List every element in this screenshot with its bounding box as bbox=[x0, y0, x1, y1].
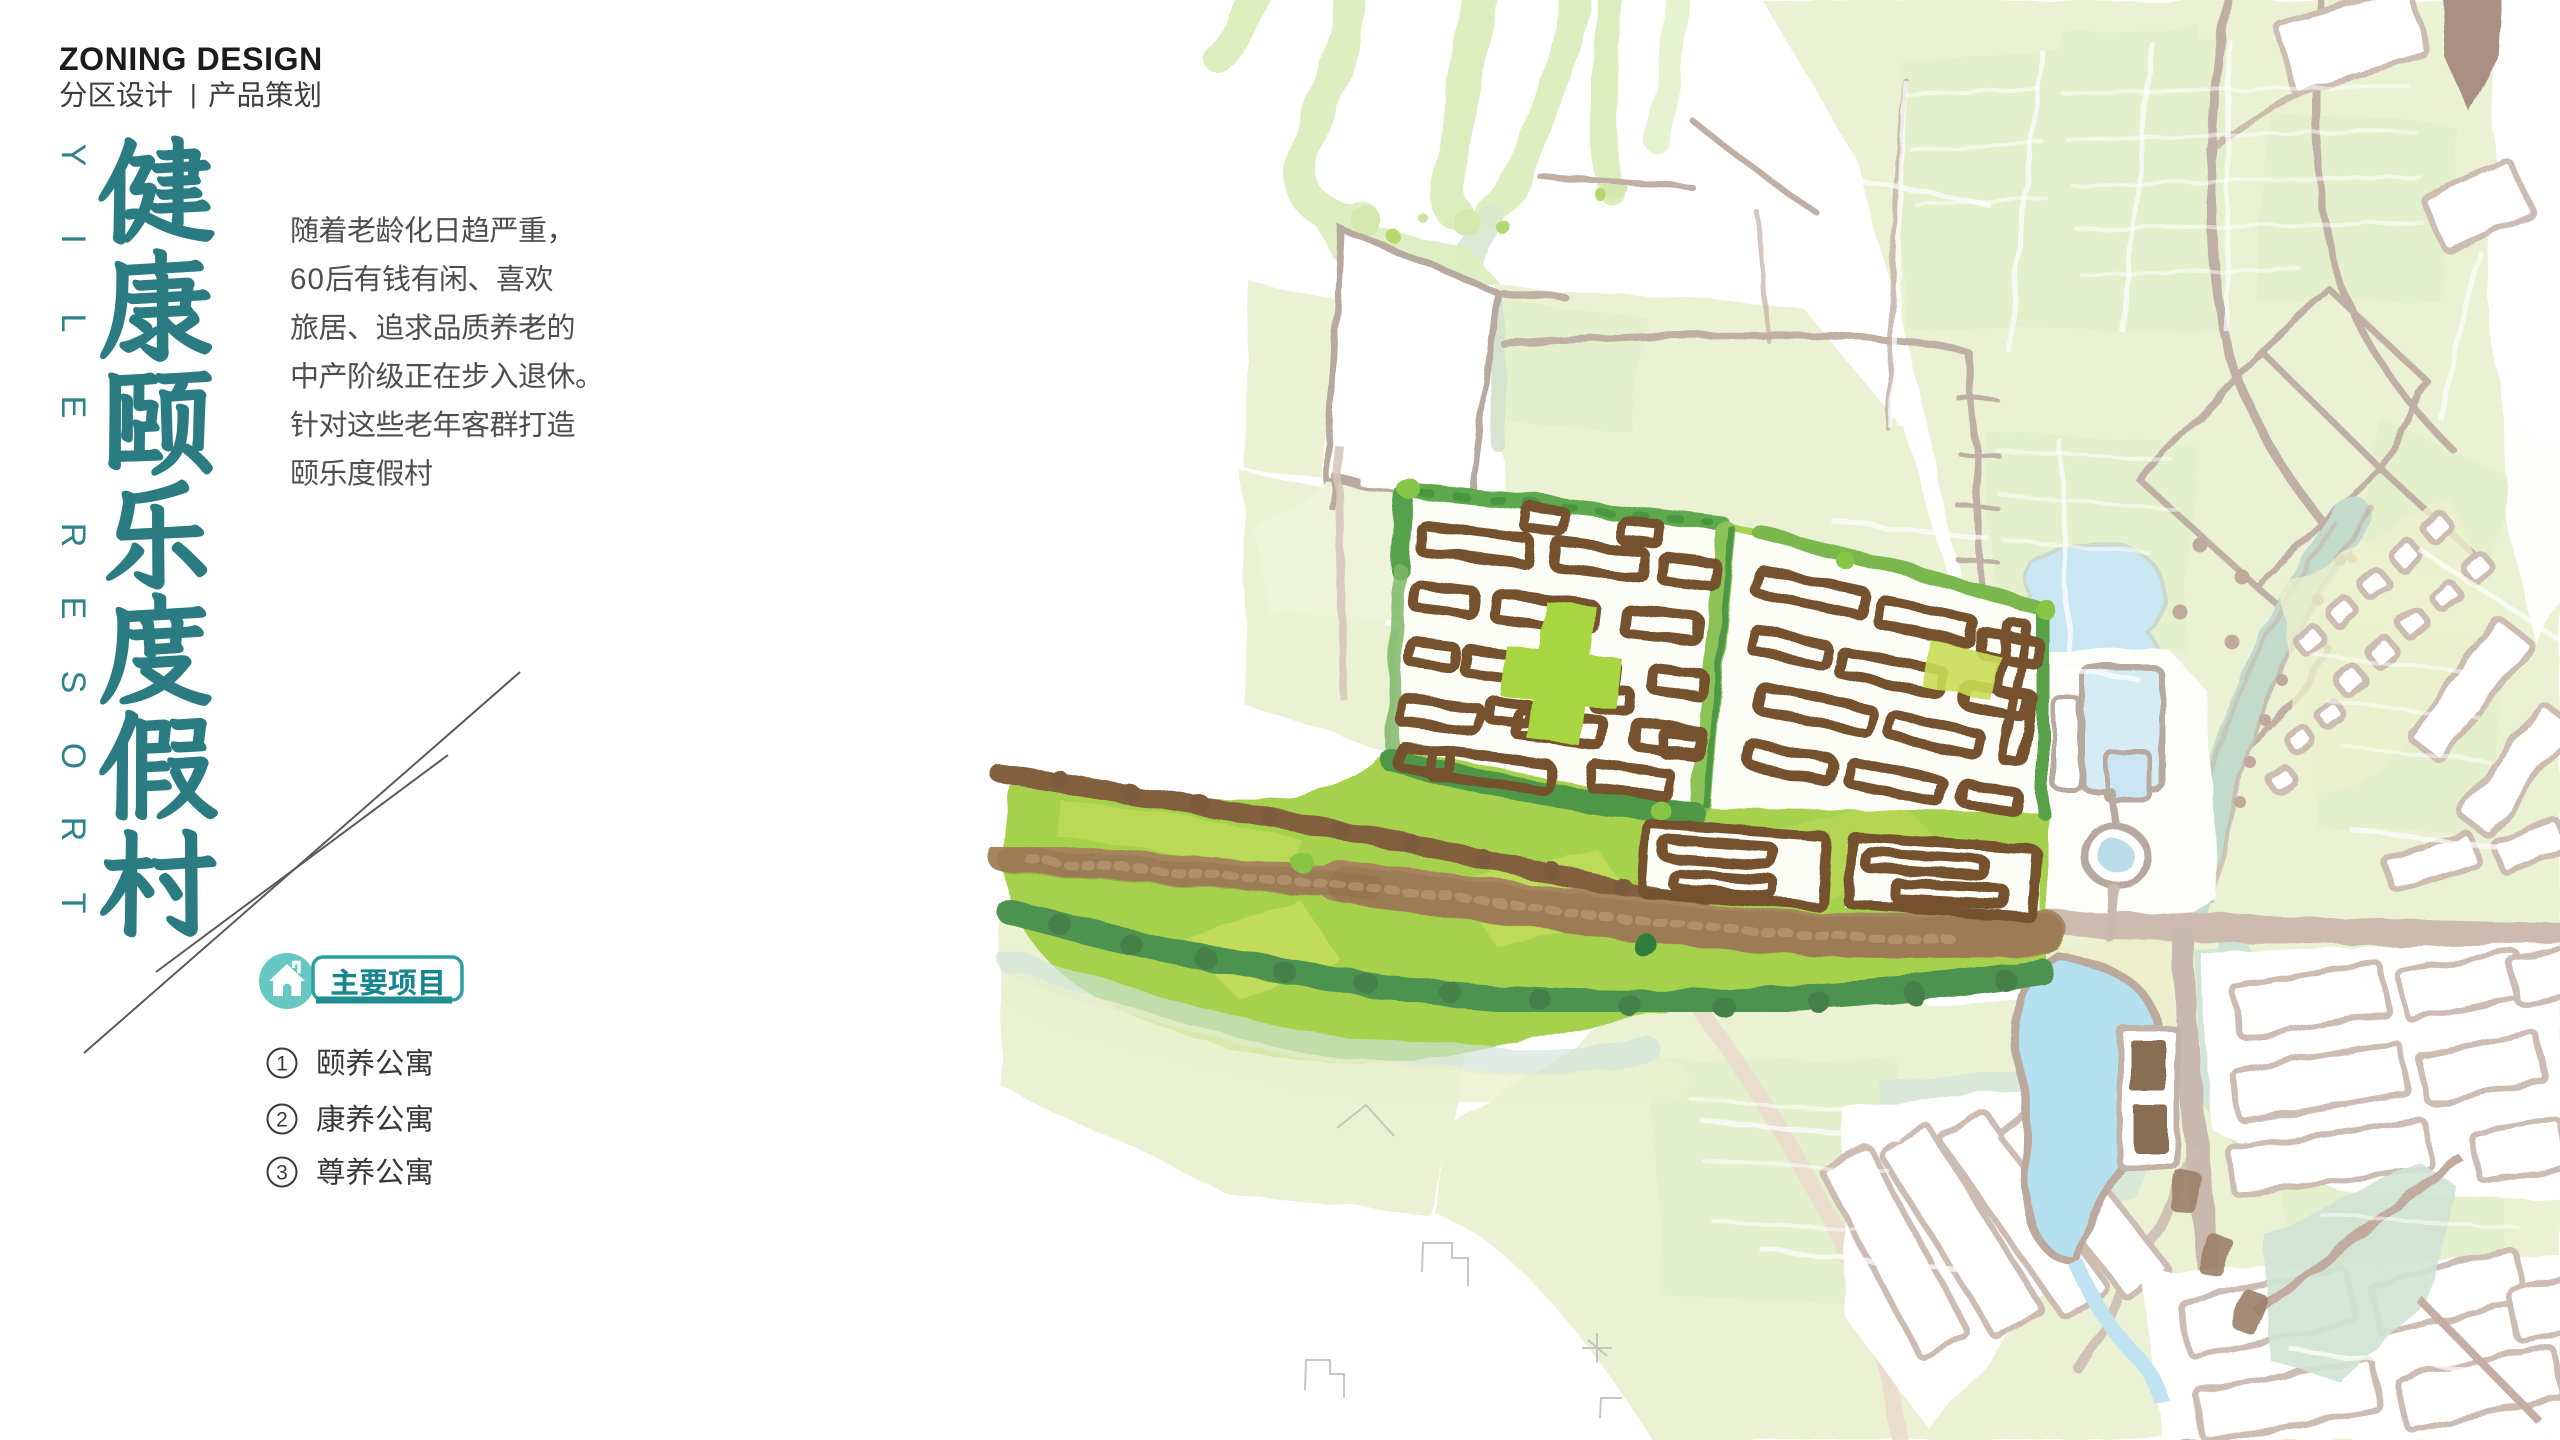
svg-text:0: 0 bbox=[308, 263, 324, 296]
svg-text:6: 6 bbox=[290, 263, 306, 296]
svg-text:E: E bbox=[54, 396, 92, 419]
svg-text:|: | bbox=[190, 79, 197, 109]
svg-text:1: 1 bbox=[276, 1053, 288, 1076]
svg-text:S: S bbox=[54, 671, 92, 694]
svg-text:I: I bbox=[54, 234, 92, 243]
svg-text:L: L bbox=[54, 314, 92, 333]
svg-text:2: 2 bbox=[276, 1109, 288, 1132]
svg-text:T: T bbox=[54, 893, 92, 914]
svg-text:ZONING DESIGN: ZONING DESIGN bbox=[59, 41, 323, 77]
svg-text:O: O bbox=[54, 743, 92, 769]
svg-text:E: E bbox=[54, 597, 92, 620]
svg-text:Y: Y bbox=[54, 144, 92, 167]
svg-text:R: R bbox=[54, 523, 92, 548]
svg-text:3: 3 bbox=[276, 1162, 288, 1185]
svg-text:R: R bbox=[54, 817, 92, 842]
